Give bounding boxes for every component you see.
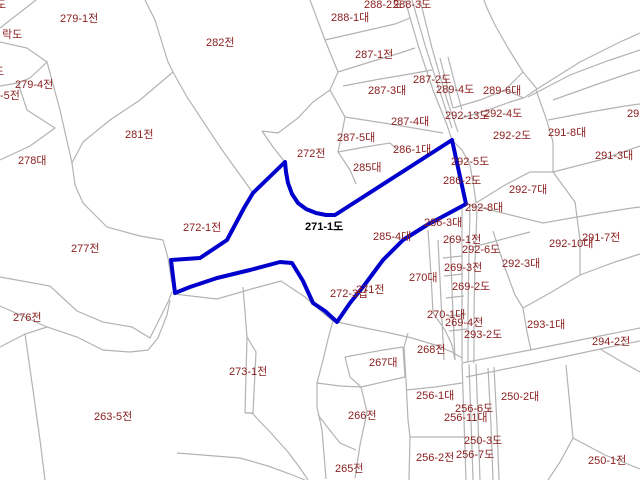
parcel-label: 292-6도 xyxy=(462,244,500,256)
parcel-label: 265전 xyxy=(335,463,363,475)
parcel-label: 266전 xyxy=(348,410,376,422)
parcel-label: 250-2대 xyxy=(501,391,539,403)
parcel-label: 287-4대 xyxy=(391,116,429,128)
parcel-label: 279-4전 xyxy=(15,79,53,91)
parcel-label: 281전 xyxy=(125,129,153,141)
parcel-label: 286-3대 xyxy=(424,217,462,229)
parcel-label: 도 xyxy=(0,66,4,78)
parcel-label: 294-2전 xyxy=(592,336,630,348)
parcel-label: 288-3도 xyxy=(393,0,431,11)
parcel-label: 292-13도 xyxy=(445,110,489,122)
parcel-label: 256-11대 xyxy=(444,412,488,424)
parcel-labels-layer: 도279-1전락도도279-4전-5전278대281전282전277전276전2… xyxy=(0,0,640,480)
parcel-label: 285-4대 xyxy=(373,231,411,243)
parcel-label: 271전 xyxy=(356,284,384,296)
parcel-label: 270대 xyxy=(409,272,437,284)
parcel-label: 273-1전 xyxy=(229,366,267,378)
parcel-label: 250-1전 xyxy=(588,455,626,467)
parcel-label: 286-2도 xyxy=(443,175,481,187)
parcel-label: 291-7전 xyxy=(582,232,620,244)
parcel-label: 293-1대 xyxy=(527,319,565,331)
parcel-label: 292-2도 xyxy=(493,130,531,142)
parcel-label: 263-5전 xyxy=(94,411,132,423)
parcel-label: 285대 xyxy=(353,162,381,174)
parcel-label: 292-3대 xyxy=(502,258,540,270)
parcel-label: -5전 xyxy=(0,90,20,102)
parcel-label: 293-2도 xyxy=(464,329,502,341)
parcel-label: 292-4도 xyxy=(484,108,522,120)
parcel-label: 277전 xyxy=(71,243,99,255)
parcel-label: 292-7대 xyxy=(509,184,547,196)
parcel-label: 287-1전 xyxy=(355,49,393,61)
parcel-label: 269-2도 xyxy=(452,281,490,293)
parcel-label: 268전 xyxy=(417,344,445,356)
parcel-label: 250-3도 xyxy=(464,435,502,447)
cadastral-map[interactable]: 도279-1전락도도279-4전-5전278대281전282전277전276전2… xyxy=(0,0,640,480)
parcel-label: 29 xyxy=(627,108,639,120)
parcel-label: 282전 xyxy=(206,37,234,49)
parcel-label: 292-8대 xyxy=(465,202,503,214)
parcel-label: 287-3대 xyxy=(368,85,406,97)
parcel-label: 288-1대 xyxy=(331,12,369,24)
parcel-label: 256-2전 xyxy=(416,452,454,464)
parcel-label: 도 xyxy=(0,0,6,11)
parcel-label: 269-3전 xyxy=(444,262,482,274)
parcel-label: 289-6대 xyxy=(483,85,521,97)
parcel-label: 256-7도 xyxy=(456,449,494,461)
parcel-label: 291-3대 xyxy=(595,150,633,162)
parcel-label: 락도 xyxy=(2,29,22,41)
parcel-label: 289-4도 xyxy=(436,84,474,96)
parcel-label: 286-1대 xyxy=(393,144,431,156)
highlighted-parcel-label: 271-1도 xyxy=(305,221,343,233)
parcel-label: 278대 xyxy=(18,155,46,167)
parcel-label: 267대 xyxy=(369,357,397,369)
parcel-label: 269-4전 xyxy=(445,317,483,329)
parcel-label: 287-5대 xyxy=(337,132,375,144)
parcel-label: 276전 xyxy=(13,312,41,324)
parcel-label: 272-1전 xyxy=(183,222,221,234)
parcel-label: 292-5도 xyxy=(451,156,489,168)
parcel-label: 291-8대 xyxy=(548,127,586,139)
parcel-label: 256-1대 xyxy=(416,390,454,402)
parcel-label: 272전 xyxy=(297,148,325,160)
parcel-label: 279-1전 xyxy=(60,13,98,25)
